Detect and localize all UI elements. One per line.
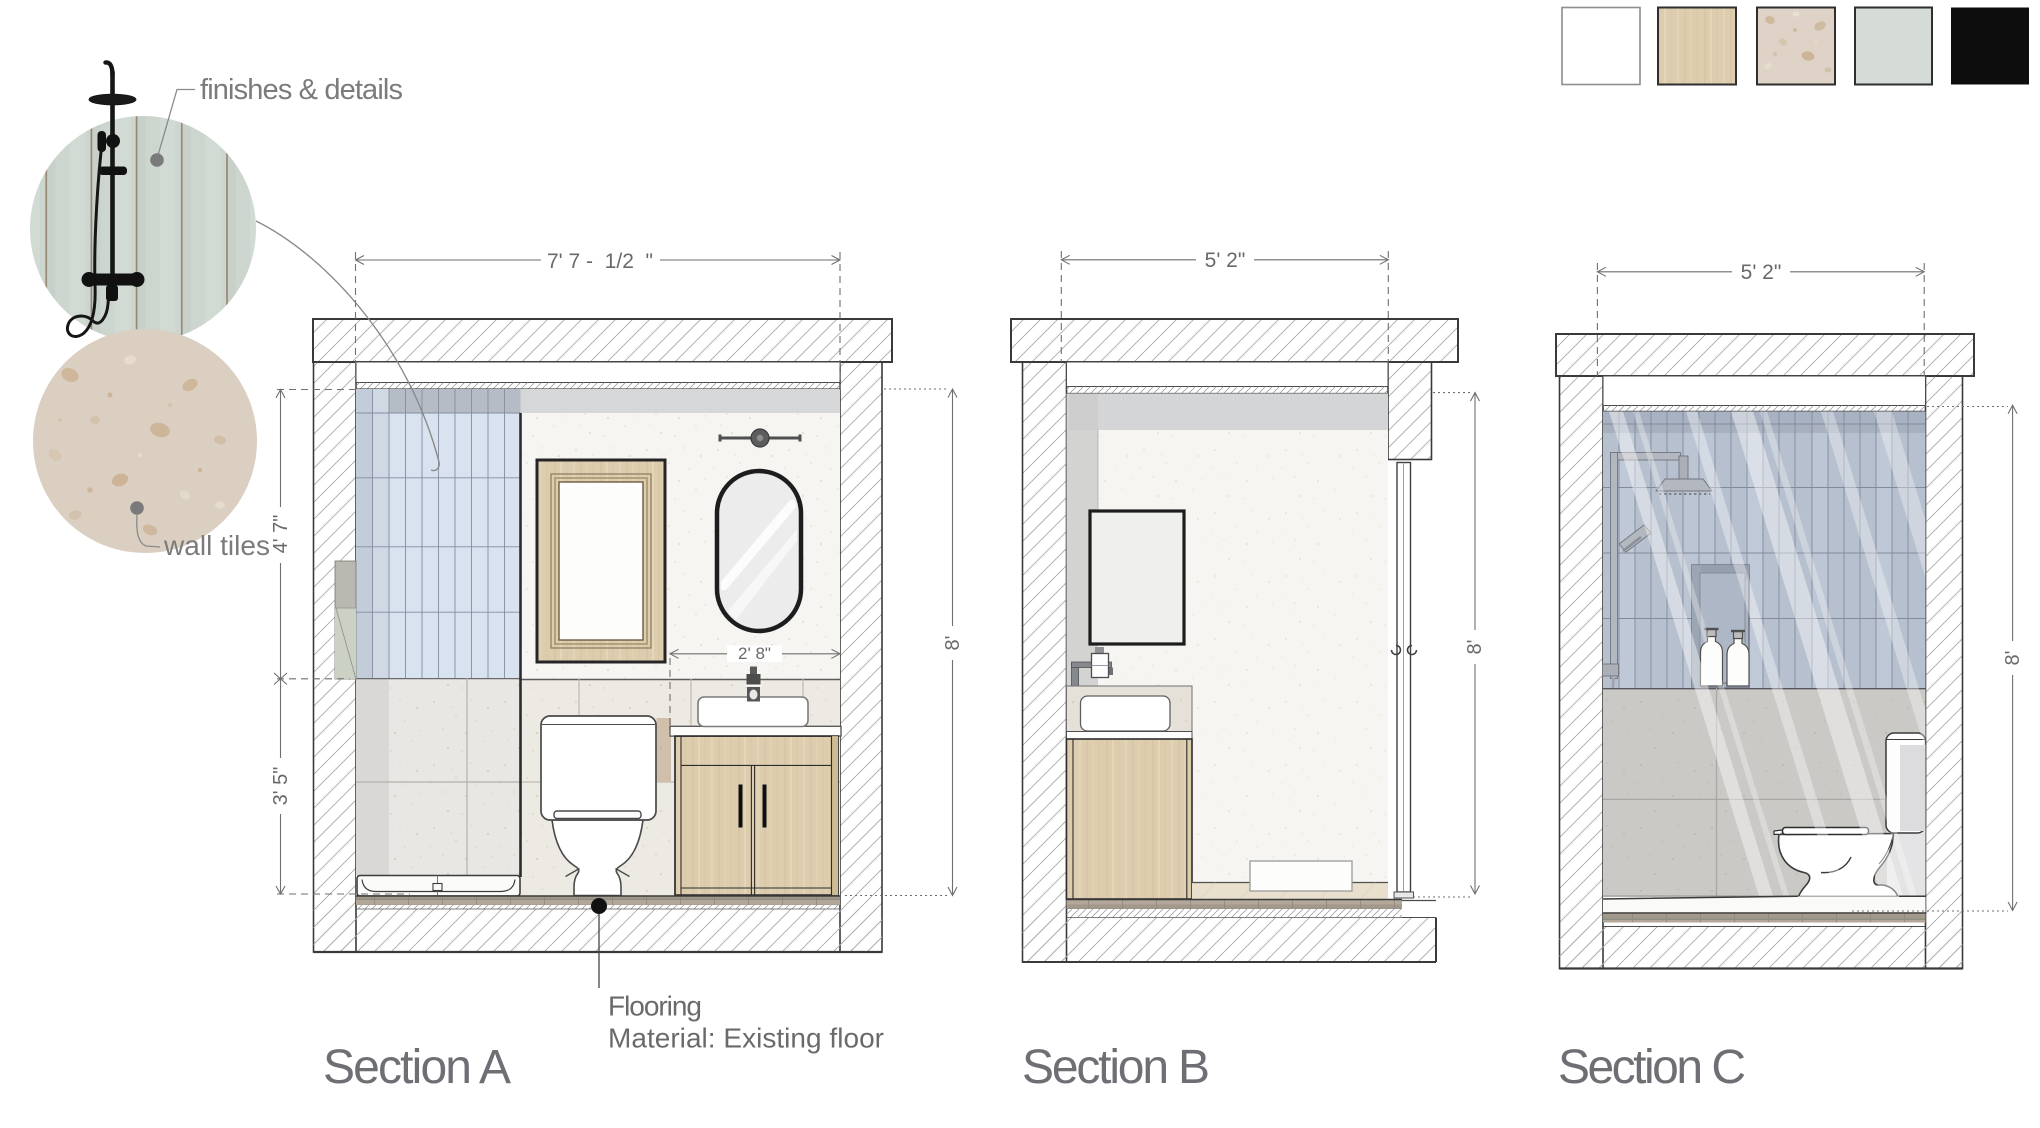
svg-text:Flooring: Flooring <box>608 991 702 1022</box>
svg-text:Section C: Section C <box>1558 1041 1746 1094</box>
svg-text:8': 8' <box>2002 651 2024 666</box>
svg-text:3' 5": 3' 5" <box>270 767 292 806</box>
svg-text:wall tiles: wall tiles <box>163 530 270 561</box>
svg-text:4' 7": 4' 7" <box>270 515 292 554</box>
svg-text:finishes & details: finishes & details <box>200 74 403 106</box>
svg-text:7' 7 - 1/2 ": 7' 7 - 1/2 " <box>547 250 653 273</box>
svg-text:8': 8' <box>1464 640 1486 655</box>
svg-text:5' 2": 5' 2" <box>1741 261 1782 284</box>
svg-text:5' 2": 5' 2" <box>1205 249 1246 272</box>
svg-text:Material: Existing floor: Material: Existing floor <box>608 1023 884 1054</box>
svg-text:8': 8' <box>942 636 964 651</box>
svg-text:Section A: Section A <box>323 1041 511 1094</box>
svg-text:2' 8": 2' 8" <box>738 644 771 663</box>
svg-text:Section B: Section B <box>1022 1041 1210 1094</box>
